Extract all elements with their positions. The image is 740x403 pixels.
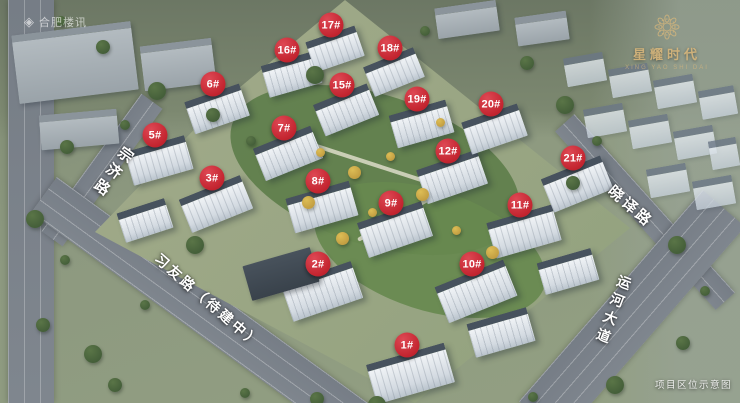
watermark-text: 合肥楼讯 (39, 14, 87, 30)
building-marker-20: 20# (479, 92, 504, 117)
building-marker-5: 5# (143, 123, 168, 148)
building-marker-16: 16# (275, 38, 300, 63)
caption-text: 项目区位示意图 (655, 377, 732, 391)
building-marker-18: 18# (378, 36, 403, 61)
building-marker-1: 1# (395, 333, 420, 358)
building-marker-10: 10# (460, 252, 485, 277)
rosette-icon (652, 12, 682, 42)
building-marker-12: 12# (436, 139, 461, 164)
building-marker-6: 6# (201, 72, 226, 97)
site-watermark: ◈ 合肥楼讯 (24, 14, 87, 30)
building-marker-7: 7# (272, 116, 297, 141)
building-marker-11: 11# (508, 193, 533, 218)
aerial-site-plan: 宗济路习友路（待建中）晓译路运河大道 1#2#3#5#6#7#8#9#10#11… (0, 0, 740, 403)
brand-logo: 星耀时代 XING YAO SHI DAI (612, 12, 722, 71)
diamond-logo-icon: ◈ (24, 14, 35, 30)
building-marker-17: 17# (319, 13, 344, 38)
building-marker-2: 2# (306, 252, 331, 277)
brand-title: 星耀时代 (612, 44, 722, 63)
building-marker-8: 8# (306, 169, 331, 194)
building-marker-3: 3# (200, 166, 225, 191)
building-marker-9: 9# (379, 191, 404, 216)
building-marker-21: 21# (561, 146, 586, 171)
building-marker-15: 15# (330, 73, 355, 98)
brand-subtitle: XING YAO SHI DAI (612, 65, 722, 71)
building-marker-19: 19# (405, 87, 430, 112)
